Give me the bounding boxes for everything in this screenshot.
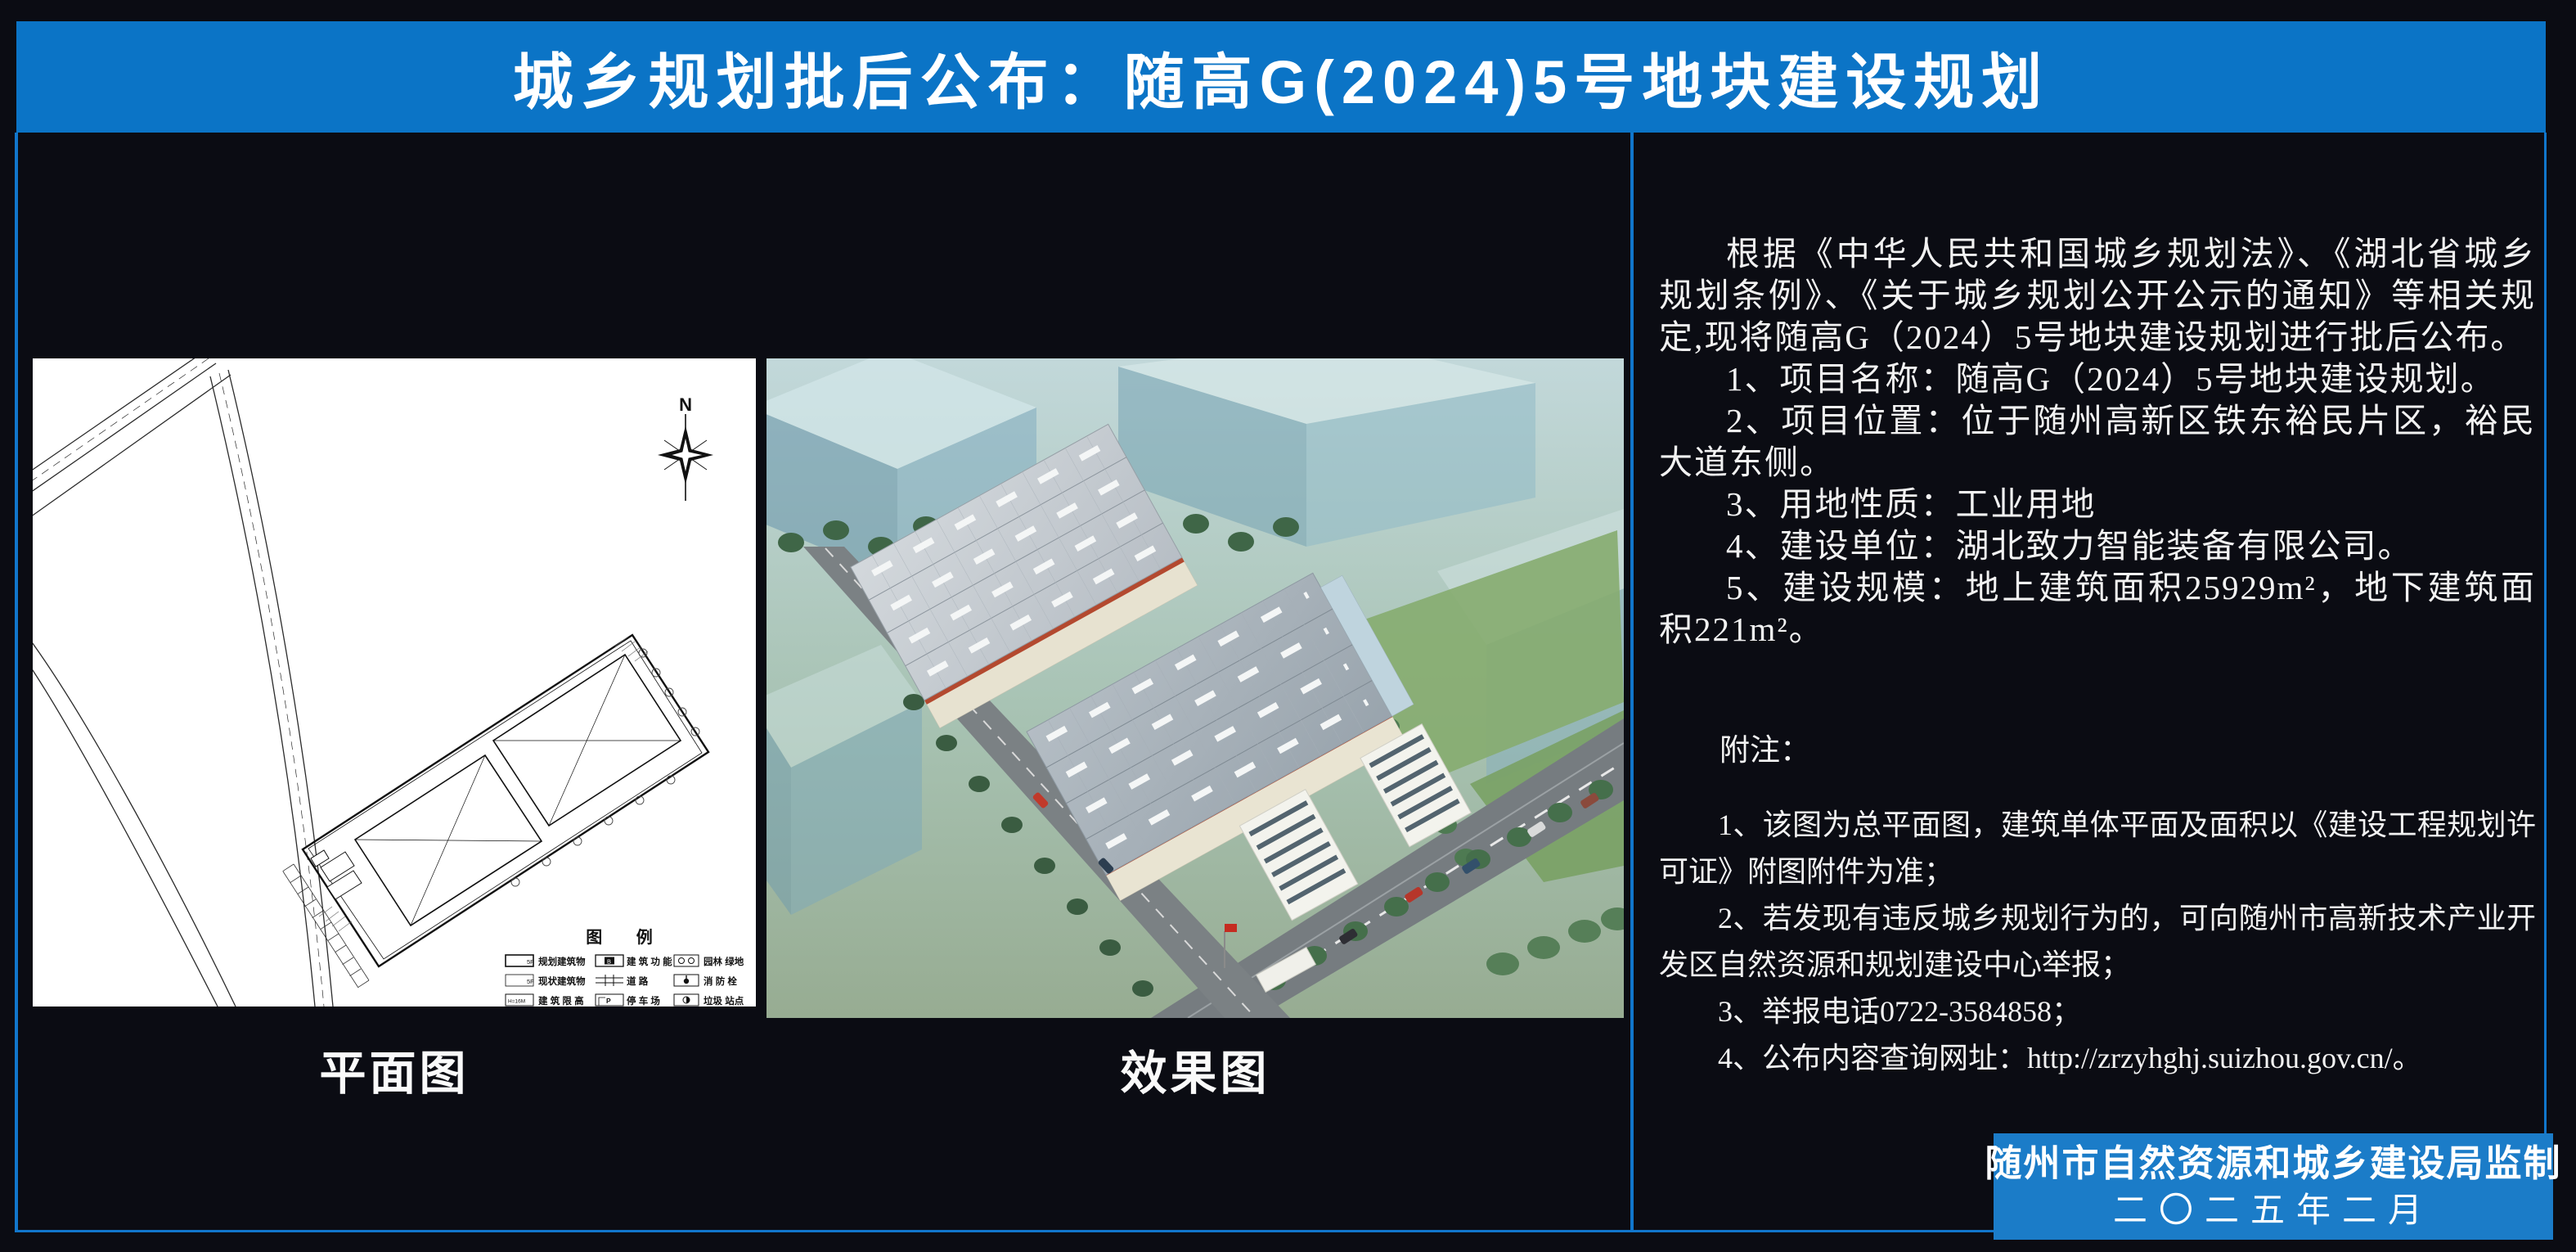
- site-plan-drawing: N 图 例 5F 规划建筑物 B 建 筑 功 能: [33, 358, 756, 1007]
- legend-label: 消 防 栓: [704, 975, 737, 987]
- legend-label: 建 筑 限 高: [538, 995, 584, 1007]
- site-plan-caption: 平面图: [33, 1033, 756, 1106]
- legend-title: 图 例: [586, 927, 668, 947]
- page-title: 城乡规划批后公布：随高G(2024)5号地块建设规划: [513, 34, 2050, 121]
- frame-right-border: [2544, 133, 2547, 1232]
- legend-label: 道 路: [627, 975, 649, 987]
- plan-legend: 图 例 5F 规划建筑物 B 建 筑 功 能 园林: [506, 927, 744, 1007]
- site-plan-panel: N 图 例 5F 规划建筑物 B 建 筑 功 能: [33, 358, 756, 1007]
- legend-label: 建 筑 功 能: [627, 956, 672, 967]
- svg-text:5F: 5F: [527, 958, 534, 966]
- rendering-caption: 效果图: [767, 1033, 1624, 1106]
- svg-text:P: P: [606, 997, 611, 1005]
- notes-block: 1、该图为总平面图，建筑单体平面及面积以《建设工程规划许可证》附图附件为准； 2…: [1659, 802, 2536, 1082]
- announcement-text-panel: 根据《中华人民共和国城乡规划法》、《湖北省城乡规划条例》、《关于城乡规划公开公示…: [1659, 233, 2536, 1082]
- announcement-intro: 根据《中华人民共和国城乡规划法》、《湖北省城乡规划条例》、《关于城乡规划公开公示…: [1659, 233, 2536, 358]
- svg-text:B: B: [607, 958, 611, 966]
- legend-symbol-height-limit: H=16M: [506, 994, 533, 1006]
- architectural-rendering: [767, 358, 1624, 1018]
- compass-icon: N: [658, 394, 713, 501]
- legend-symbol-existing-building: 5F: [506, 975, 534, 986]
- legend-label: 现状建筑物: [538, 975, 586, 987]
- announcement-item-5: 5、建设规模：地上建筑面积25929m²，地下建筑面积221m²。: [1659, 567, 2536, 651]
- note-4: 4、公布内容查询网址：http://zrzyhghj.suizhou.gov.c…: [1659, 1035, 2536, 1082]
- rendering-panel: [767, 358, 1624, 1018]
- plan-roads: [33, 358, 333, 1007]
- legend-symbol-green-space: [674, 955, 699, 966]
- panel-divider: [1630, 133, 1634, 1230]
- legend-symbol-garbage-station: [674, 994, 699, 1006]
- announcement-item-1: 1、项目名称：随高G（2024）5号地块建设规划。: [1659, 358, 2536, 400]
- announcement-item-2: 2、项目位置：位于随州高新区铁东裕民片区，裕民大道东侧。: [1659, 400, 2536, 484]
- legend-symbol-building-function: B: [596, 955, 623, 966]
- red-flag: [1225, 924, 1237, 932]
- issuer-name: 随州市自然资源和城乡建设局监制: [1985, 1140, 2562, 1187]
- svg-text:H=16M: H=16M: [508, 999, 525, 1005]
- announcement-item-4: 4、建设单位：湖北致力智能装备有限公司。: [1659, 525, 2536, 567]
- legend-symbol-parking: P: [596, 994, 623, 1006]
- notes-heading: 附注：: [1659, 727, 2536, 774]
- legend-symbol-planned-building: 5F: [506, 955, 534, 966]
- legend-label: 垃圾 站点: [704, 995, 744, 1007]
- announcement-item-3: 3、用地性质：工业用地: [1659, 484, 2536, 525]
- title-banner: 城乡规划批后公布：随高G(2024)5号地块建设规划: [16, 21, 2546, 133]
- legend-label: 规划建筑物: [538, 956, 586, 967]
- legend-label: 停 车 场: [627, 995, 660, 1007]
- issue-date: 二〇二五年二月: [2113, 1187, 2434, 1233]
- legend-symbol-fire-hydrant: [674, 975, 699, 986]
- note-3: 3、举报电话0722-3584858；: [1659, 989, 2536, 1035]
- compass-north-label: N: [679, 394, 692, 415]
- legend-symbol-road: [596, 975, 623, 986]
- note-2: 2、若发现有违反城乡规划行为的，可向随州市高新技术产业开发区自然资源和规划建设中…: [1659, 895, 2536, 989]
- legend-label: 园林 绿地: [704, 956, 744, 967]
- svg-text:5F: 5F: [527, 978, 534, 985]
- frame-left-border: [15, 133, 18, 1232]
- issuer-box: 随州市自然资源和城乡建设局监制 二〇二五年二月: [1994, 1133, 2553, 1240]
- building-footprints: [355, 655, 681, 925]
- note-1: 1、该图为总平面图，建筑单体平面及面积以《建设工程规划许可证》附图附件为准；: [1659, 802, 2536, 895]
- announcement-poster: 城乡规划批后公布：随高G(2024)5号地块建设规划: [0, 0, 2576, 1252]
